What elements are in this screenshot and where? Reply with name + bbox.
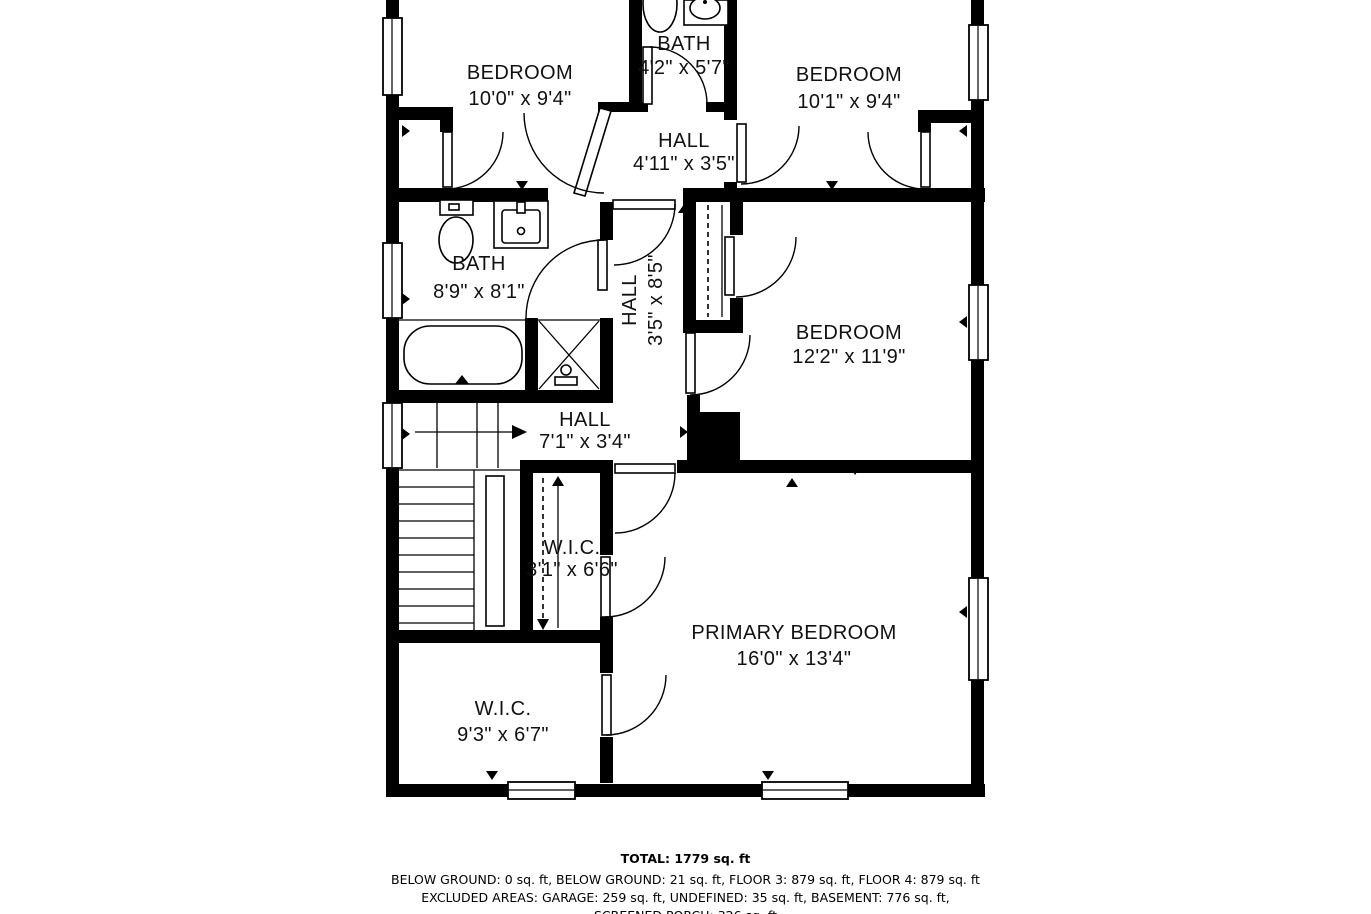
bedroom-tr-dims: 10'1" x 9'4": [797, 91, 900, 113]
bedroom-right-dims: 12'2" x 11'9": [792, 346, 905, 368]
shower-icon: [538, 320, 600, 389]
wic-large-label: W.I.C.: [475, 698, 532, 720]
summary-floors: BELOW GROUND: 0 sq. ft, BELOW GROUND: 21…: [0, 872, 1371, 887]
walls: [386, 0, 985, 797]
hall-mid-dims: 3'5" x 8'5": [645, 254, 667, 346]
floor-plan-page: BEDROOM 10'0" x 9'4" BATH 4'2" x 5'7" BE…: [0, 0, 1371, 914]
toilet-icon: [643, 0, 677, 32]
hall-mid-label: HALL: [619, 274, 641, 326]
chimney: [687, 412, 740, 473]
hall-lower-label: HALL: [559, 409, 611, 431]
floor-plan: BEDROOM 10'0" x 9'4" BATH 4'2" x 5'7" BE…: [0, 0, 1371, 914]
bedroom-tl-label: BEDROOM: [467, 62, 573, 84]
bedroom-right-label: BEDROOM: [796, 322, 902, 344]
bath-top-dims: 4'2" x 5'7": [638, 57, 730, 79]
primary-bedroom-dims: 16'0" x 13'4": [737, 648, 852, 670]
stairs-up-arrow: [512, 425, 527, 439]
stairs: [399, 392, 527, 630]
summary-excluded-2: SCREENED PORCH: 326 sq. ft: [0, 908, 1371, 914]
bath-mid-label: BATH: [452, 253, 505, 275]
bath-mid-dims: 8'9" x 8'1": [433, 281, 525, 303]
primary-bedroom-label: PRIMARY BEDROOM: [691, 622, 896, 644]
wic-small-label: W.I.C.: [544, 537, 601, 559]
sink-icon: [494, 201, 548, 248]
hall-top-label: HALL: [658, 130, 710, 152]
summary-excluded: EXCLUDED AREAS: GARAGE: 259 sq. ft, UNDE…: [0, 890, 1371, 905]
bathtub-icon: [399, 320, 525, 384]
bedroom-tl-dims: 10'0" x 9'4": [468, 88, 571, 110]
bath-top-label: BATH: [657, 33, 710, 55]
bedroom-tr-label: BEDROOM: [796, 64, 902, 86]
hall-lower-dims: 7'1" x 3'4": [539, 431, 631, 453]
wic-large-dims: 9'3" x 6'7": [457, 724, 549, 746]
hall-top-dims: 4'11" x 3'5": [633, 153, 735, 175]
summary-total: TOTAL: 1779 sq. ft: [0, 851, 1371, 866]
wic-small-dims: 3'1" x 6'6": [526, 559, 618, 581]
